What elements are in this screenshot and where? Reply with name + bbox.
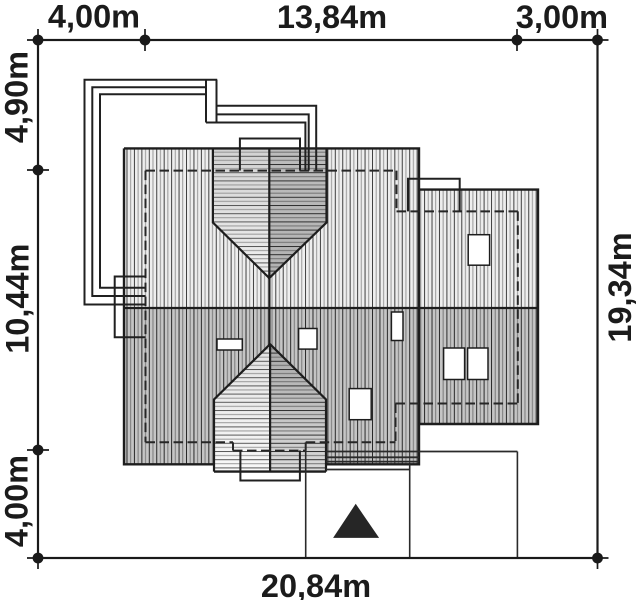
- svg-text:13,84m: 13,84m: [277, 0, 387, 35]
- svg-text:3,00m: 3,00m: [516, 0, 608, 35]
- svg-text:19,34m: 19,34m: [602, 232, 638, 342]
- svg-text:4,90m: 4,90m: [0, 51, 35, 143]
- svg-text:4,00m: 4,00m: [48, 0, 140, 35]
- svg-text:10,44m: 10,44m: [0, 244, 36, 354]
- svg-text:4,00m: 4,00m: [0, 455, 35, 547]
- svg-text:20,84m: 20,84m: [261, 568, 371, 600]
